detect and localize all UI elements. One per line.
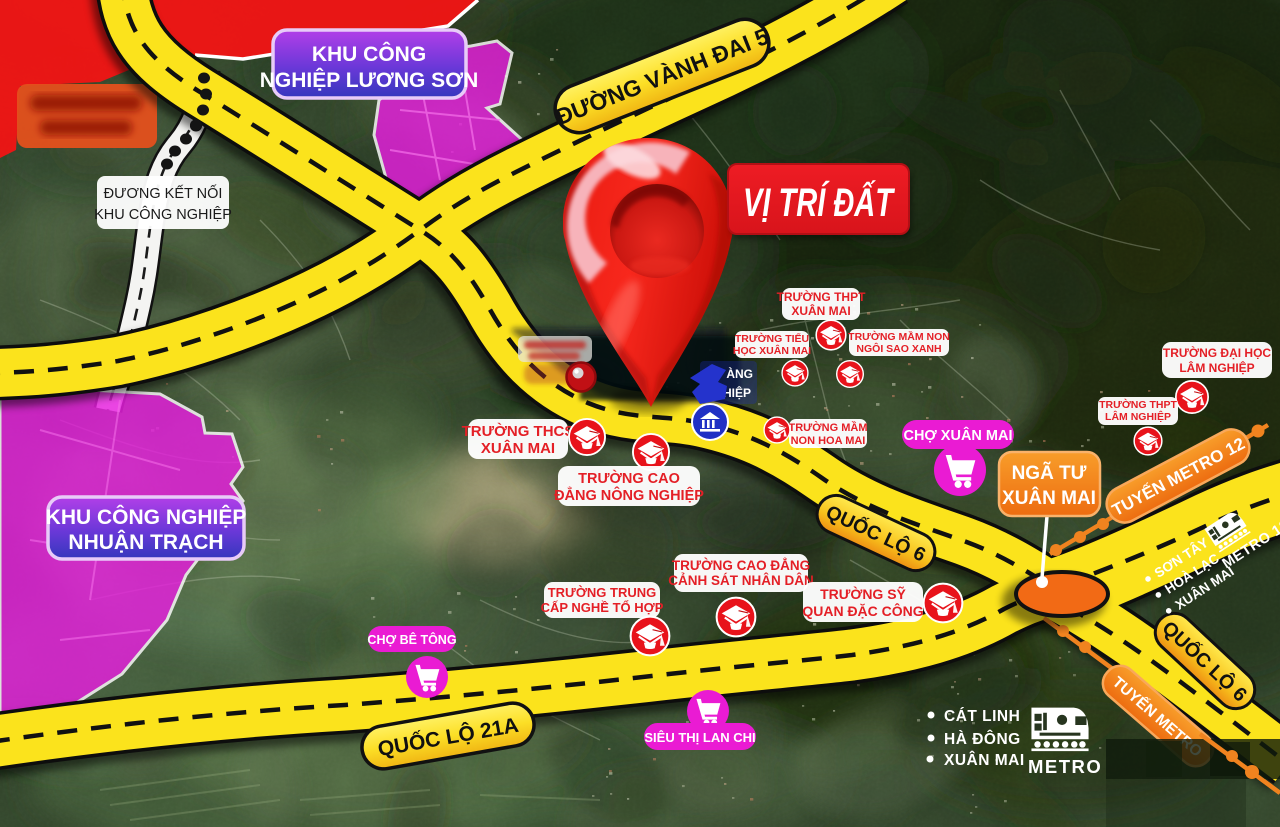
svg-text:KHU CÔNG: KHU CÔNG xyxy=(312,42,426,66)
svg-text:XUÂN MAI: XUÂN MAI xyxy=(1002,487,1096,509)
svg-text:CHỢ BÊ TÔNG: CHỢ BÊ TÔNG xyxy=(367,632,456,647)
svg-text:TRƯỜNG ĐẠI HỌC: TRƯỜNG ĐẠI HỌC xyxy=(1163,345,1272,360)
svg-text:TRƯỜNG MẦM: TRƯỜNG MẦM xyxy=(789,421,868,434)
svg-text:VỊ TRÍ ĐẤT: VỊ TRÍ ĐẤT xyxy=(743,179,896,225)
svg-text:HIỆP: HIỆP xyxy=(723,385,751,400)
svg-text:TRƯỜNG TIỂU: TRƯỜNG TIỂU xyxy=(735,332,809,345)
svg-text:HÀ ĐÔNG: HÀ ĐÔNG xyxy=(944,730,1021,748)
svg-text:METRO: METRO xyxy=(1028,756,1102,777)
svg-text:TRƯỜNG THPT: TRƯỜNG THPT xyxy=(777,289,867,304)
svg-text:XUÂN MAI: XUÂN MAI xyxy=(944,751,1025,769)
svg-text:XUÂN MAI: XUÂN MAI xyxy=(791,303,850,318)
svg-text:HỌC XUÂN MAI: HỌC XUÂN MAI xyxy=(733,344,811,357)
svg-text:ĐƯƠNG KẾT NỐI: ĐƯƠNG KẾT NỐI xyxy=(104,184,223,202)
svg-text:LÂM NGHIỆP: LÂM NGHIỆP xyxy=(1105,410,1171,423)
svg-text:NON HOA MAI: NON HOA MAI xyxy=(791,435,866,447)
svg-text:NHUẬN TRẠCH: NHUẬN TRẠCH xyxy=(68,530,223,554)
svg-text:TRƯỜNG THCS: TRƯỜNG THCS xyxy=(462,422,575,440)
svg-text:CÁT LINH: CÁT LINH xyxy=(944,708,1020,725)
svg-text:CHỢ XUÂN MAI: CHỢ XUÂN MAI xyxy=(903,426,1012,444)
svg-text:KHU CÔNG NGHIỆP: KHU CÔNG NGHIỆP xyxy=(46,505,247,529)
svg-text:TRƯỜNG MẦM NON: TRƯỜNG MẦM NON xyxy=(848,330,950,343)
svg-text:ÀNG: ÀNG xyxy=(726,366,753,381)
svg-text:TRƯỜNG CAO ĐẲNG: TRƯỜNG CAO ĐẲNG xyxy=(672,558,810,573)
svg-text:TRƯỜNG SỸ: TRƯỜNG SỸ xyxy=(820,585,906,602)
svg-text:NGÃ TƯ: NGÃ TƯ xyxy=(1012,462,1087,484)
svg-text:CẢNH SÁT NHÂN DÂN: CẢNH SÁT NHÂN DÂN xyxy=(668,573,814,588)
svg-text:KHU CÔNG NGHIỆP: KHU CÔNG NGHIỆP xyxy=(94,206,232,223)
svg-text:XUÂN MAI: XUÂN MAI xyxy=(481,439,555,457)
svg-text:NGHIỆP LƯƠNG SƠN: NGHIỆP LƯƠNG SƠN xyxy=(260,68,479,92)
svg-text:TRƯỜNG THPT: TRƯỜNG THPT xyxy=(1099,398,1177,411)
svg-text:TRƯỜNG CAO: TRƯỜNG CAO xyxy=(578,469,680,487)
svg-text:CẤP NGHỀ TỔ HỢP: CẤP NGHỀ TỔ HỢP xyxy=(541,600,664,615)
svg-text:TRƯỜNG TRUNG: TRƯỜNG TRUNG xyxy=(548,585,657,600)
svg-text:LÂM NGHIỆP: LÂM NGHIỆP xyxy=(1179,360,1254,375)
svg-text:SIÊU THỊ LAN CHI: SIÊU THỊ LAN CHI xyxy=(644,730,755,745)
svg-text:QUAN ĐẶC CÔNG: QUAN ĐẶC CÔNG xyxy=(802,602,923,619)
svg-text:ĐẲNG NÔNG NGHIỆP: ĐẲNG NÔNG NGHIỆP xyxy=(554,486,704,504)
svg-text:NGÔI SAO XANH: NGÔI SAO XANH xyxy=(856,342,941,355)
